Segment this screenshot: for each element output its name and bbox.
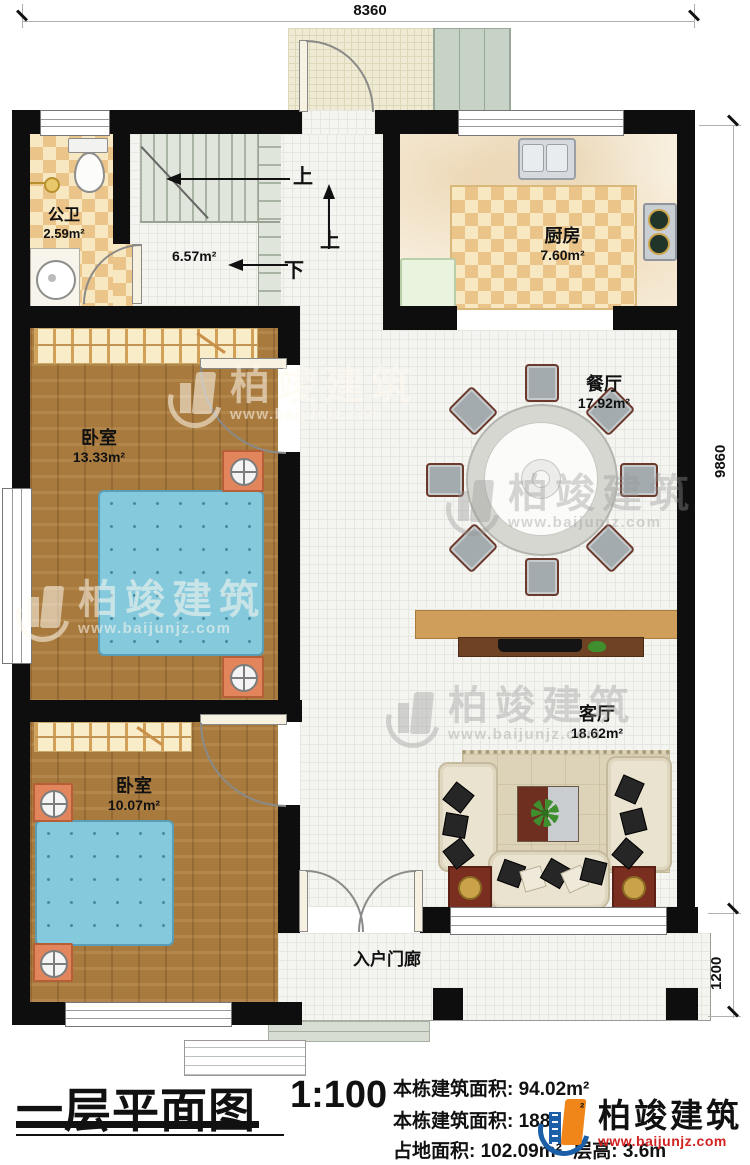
room-area: 7.60m² <box>505 247 620 264</box>
burner-top <box>648 209 670 231</box>
room-name: 入户门廊 <box>328 950 446 970</box>
dim-porch-height: 1200 <box>708 938 725 990</box>
info-label: 本栋建筑面积: <box>393 1111 513 1132</box>
room-name: 卧室 <box>40 428 158 449</box>
room-name: 厨房 <box>505 226 620 247</box>
wall <box>278 805 300 933</box>
info-label: 占地面积: <box>393 1141 475 1162</box>
room-area: 13.33m² <box>40 449 158 466</box>
company-logo: 柏竣建筑 www.baijunjz.com <box>538 1094 742 1154</box>
divider-shelf <box>415 610 682 639</box>
stair-hall-area: 6.57m² <box>172 248 216 264</box>
bedroom1-window <box>2 488 32 664</box>
company-logo-text: 柏竣建筑 www.baijunjz.com <box>598 1099 742 1150</box>
kitchen-window <box>458 110 624 136</box>
dim-height-right: 9860 <box>712 418 729 478</box>
porch-label: 入户门廊 <box>328 950 446 970</box>
info-line-2-superscript: ² <box>580 1100 584 1115</box>
wall <box>113 134 130 244</box>
kitchen-label: 厨房 7.60m² <box>505 226 620 264</box>
down-arrow-line <box>242 264 288 266</box>
bedroom2-window <box>65 1002 232 1027</box>
entry-up-arrowhead <box>323 184 335 199</box>
tv-cabinet-plant <box>588 641 606 652</box>
title-underline-thin <box>16 1134 284 1136</box>
dim-line-top <box>22 21 695 22</box>
room-area: 17.92m² <box>545 395 663 412</box>
dim-line-right <box>733 125 734 1018</box>
room-area: 10.07m² <box>75 797 193 814</box>
stair-up-label: 上 <box>293 160 313 189</box>
plan-scale: 1:100 <box>290 1074 387 1117</box>
room-area: 18.62m² <box>538 725 656 742</box>
wall <box>420 907 450 933</box>
up-arrowhead <box>166 173 181 185</box>
bathroom-window <box>40 110 110 136</box>
toilet-tank <box>68 138 108 153</box>
bedroom1-nightstand-top <box>222 450 264 492</box>
bedroom2-wardrobe <box>34 722 192 752</box>
wardrobe-rail <box>35 736 191 738</box>
bathroom-sink <box>36 260 76 300</box>
dining-label: 餐厅 17.92m² <box>545 374 663 412</box>
wall <box>677 110 695 907</box>
plan-title: 一层平面图 <box>16 1072 256 1141</box>
wall <box>665 907 698 933</box>
bedroom2-nightstand-top <box>33 783 73 822</box>
nightstand-knob <box>230 664 258 692</box>
dining-chair <box>525 558 559 596</box>
wall <box>12 1002 65 1025</box>
coffee-table-plant <box>531 799 559 827</box>
bedroom2-bed <box>35 820 174 946</box>
nightstand-knob <box>40 950 68 978</box>
dim-width-top: 8360 <box>330 2 410 19</box>
down-arrowhead <box>228 259 243 271</box>
fridge <box>400 258 456 310</box>
porch-column <box>666 988 698 1020</box>
company-url: www.baijunjz.com <box>598 1133 742 1149</box>
side-table-right-medallion <box>622 876 646 900</box>
patio-side-panels <box>433 28 511 112</box>
logo-building-blue <box>549 1112 561 1144</box>
sofa-pillow <box>442 812 469 839</box>
sink-basin-left <box>522 144 544 172</box>
toilet-bowl <box>74 152 105 193</box>
bedroom2-label: 卧室 10.07m² <box>75 776 193 814</box>
info-label: 本栋建筑面积: <box>393 1079 513 1100</box>
room-name: 卧室 <box>75 776 193 797</box>
bathroom-label: 公卫 2.59m² <box>28 207 100 241</box>
sink-basin-right <box>546 144 568 172</box>
room-name: 餐厅 <box>545 374 663 395</box>
company-name: 柏竣建筑 <box>598 1099 742 1134</box>
wall <box>613 306 695 330</box>
porch-column <box>433 988 463 1020</box>
wall <box>375 110 458 134</box>
wall <box>383 306 457 330</box>
nightstand-knob <box>230 458 258 486</box>
living-label: 客厅 18.62m² <box>538 704 656 742</box>
wall <box>278 306 300 365</box>
room-name: 客厅 <box>538 704 656 725</box>
bedroom1-bed <box>98 490 264 656</box>
nightstand-knob <box>40 790 68 818</box>
wall <box>230 1002 302 1025</box>
stair-landing-edge <box>140 221 280 223</box>
title-underline-thick <box>16 1121 259 1128</box>
tv <box>498 639 582 652</box>
bedroom1-label: 卧室 13.33m² <box>40 428 158 466</box>
wall <box>383 134 400 306</box>
wardrobe-rail <box>35 344 257 346</box>
stair-down-label: 下 <box>284 254 304 283</box>
side-table-left-medallion <box>458 876 482 900</box>
dining-chair <box>620 463 658 497</box>
room-name: 公卫 <box>28 207 100 226</box>
wall <box>12 306 278 328</box>
porch-floor <box>278 933 711 1021</box>
sink-drain <box>48 274 56 282</box>
living-window <box>450 907 667 935</box>
floor-plan-canvas: 上 下 上 6.57m² <box>0 0 750 1165</box>
patio-door-opening-floor <box>302 110 375 134</box>
wall <box>12 110 30 490</box>
porch-steps <box>184 1040 306 1076</box>
up-arrow-line <box>180 178 290 180</box>
lazy-susan-center <box>532 470 550 488</box>
wall <box>108 110 302 134</box>
info-line-2: 本栋建筑面积: 188. <box>393 1106 556 1133</box>
towel-ring <box>44 177 60 193</box>
dining-chair <box>426 463 464 497</box>
burner-bottom <box>648 233 670 255</box>
bedroom1-nightstand-bottom <box>222 656 264 698</box>
entry-up-label: 上 <box>320 224 340 253</box>
wall <box>278 452 300 700</box>
bedroom2-nightstand-bottom <box>33 943 73 982</box>
room-area: 2.59m² <box>28 226 100 241</box>
